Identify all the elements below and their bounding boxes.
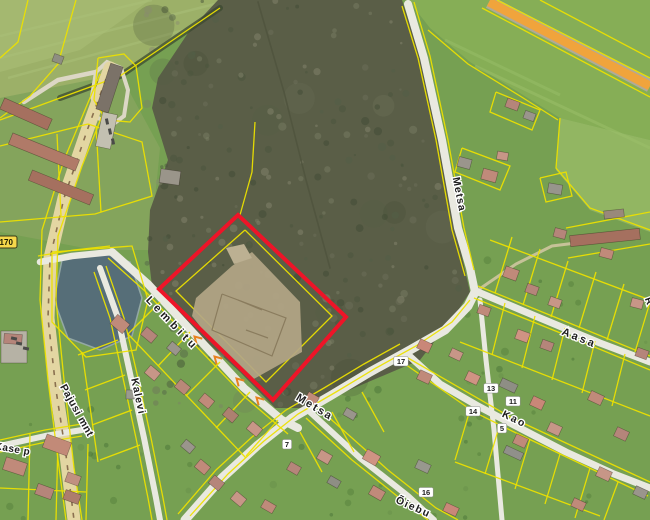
forest-speckle	[194, 187, 199, 192]
yard-tree	[347, 489, 354, 496]
forest-speckle	[424, 265, 428, 269]
forest-speckle	[235, 205, 238, 208]
forest-speckle	[160, 165, 163, 168]
forest-speckle	[288, 181, 292, 185]
house-number: 17	[397, 357, 405, 366]
forest-speckle	[177, 195, 184, 202]
yard-tree	[481, 371, 484, 374]
forest-speckle	[178, 262, 181, 265]
forest-speckle	[227, 147, 232, 152]
forest-speckle	[160, 270, 164, 274]
forest-speckle	[305, 71, 308, 74]
forest-speckle	[422, 199, 425, 202]
forest-speckle	[409, 126, 417, 134]
forest-speckle	[195, 115, 199, 119]
yard-tree	[531, 410, 535, 414]
yard-tree	[463, 486, 468, 491]
forest-speckle	[401, 316, 408, 323]
forest-speckle	[167, 244, 174, 251]
forest-speckle	[180, 350, 188, 358]
forest-speckle	[315, 133, 322, 140]
forest-speckle	[212, 16, 219, 23]
forest-speckle	[181, 217, 187, 223]
forest-speckle	[367, 172, 374, 179]
yard-tree	[88, 451, 93, 456]
forest-speckle	[230, 225, 238, 233]
forest-speckle	[386, 328, 394, 336]
yard-tree	[496, 366, 503, 373]
forest-speckle	[344, 131, 351, 138]
yard-tree	[498, 373, 503, 378]
forest-speckle	[335, 98, 342, 105]
forest-speckle	[261, 168, 269, 176]
forest-speckle	[169, 292, 172, 295]
yard-tree	[538, 279, 542, 283]
yard-tree	[29, 423, 32, 426]
forest-speckle	[362, 95, 368, 101]
yard-tree	[477, 452, 481, 456]
forest-speckle	[330, 253, 335, 258]
forest-speckle	[161, 6, 168, 13]
house-number: 5	[500, 424, 504, 433]
building-roof	[547, 183, 563, 195]
forest-speckle	[391, 265, 394, 268]
forest-speckle	[329, 366, 334, 371]
forest-speckle	[402, 90, 409, 97]
forest-speckle	[159, 97, 166, 104]
forest-speckle	[254, 33, 261, 40]
forest-speckle	[197, 56, 202, 61]
forest-speckle	[401, 164, 404, 167]
forest-speckle	[313, 68, 320, 75]
forest-speckle	[250, 106, 253, 109]
forest-speckle	[400, 42, 403, 45]
forest-speckle	[353, 3, 359, 9]
forest-speckle	[162, 390, 167, 395]
forest-speckle	[152, 386, 160, 394]
forest-speckle	[424, 203, 429, 208]
yard-tree	[644, 341, 647, 344]
forest-speckle	[276, 114, 281, 119]
forest-speckle	[216, 58, 221, 63]
forest-speckle	[375, 104, 381, 110]
yard-tree	[345, 396, 351, 402]
road-number: 4170	[0, 238, 13, 247]
yard-tree	[501, 348, 509, 356]
building-roof	[159, 169, 181, 186]
yard-tree	[463, 515, 467, 519]
yard-tree	[586, 493, 591, 498]
yard-tree	[116, 465, 121, 470]
yard-tree	[458, 415, 464, 421]
forest-speckle	[163, 236, 169, 242]
forest-speckle	[320, 110, 324, 114]
forest-speckle	[267, 108, 274, 115]
yard-tree	[186, 488, 192, 494]
forest-speckle	[310, 382, 318, 390]
forest-speckle	[435, 183, 442, 190]
forest-speckle	[278, 122, 286, 130]
yard-tree	[165, 445, 170, 450]
forest-speckle	[455, 285, 462, 292]
yard-tree	[337, 412, 342, 417]
forest-speckle	[356, 224, 364, 232]
yard-tree	[110, 497, 117, 504]
yard-tree	[388, 510, 392, 514]
forest-speckle	[321, 375, 325, 379]
yard-tree	[299, 444, 305, 450]
forest-speckle	[298, 176, 303, 181]
forest-speckle	[391, 69, 395, 73]
forest-speckle	[198, 133, 201, 136]
forest-speckle	[266, 202, 272, 208]
forest-speckle	[212, 262, 217, 267]
forest-speckle	[145, 261, 150, 266]
forest-speckle	[345, 302, 353, 310]
forest-speckle	[389, 20, 392, 23]
forest-speckle	[374, 127, 382, 135]
forest-speckle	[345, 157, 352, 164]
forest-speckle	[268, 30, 273, 35]
forest-speckle	[265, 146, 272, 153]
forest-speckle	[206, 228, 211, 233]
forest-speckle	[329, 339, 334, 344]
yard-tree	[571, 358, 574, 361]
forest-speckle	[432, 195, 437, 200]
forest-speckle	[385, 255, 391, 261]
forest-speckle	[396, 298, 403, 305]
forest-speckle	[238, 72, 243, 77]
forest-speckle	[259, 210, 267, 218]
forest-speckle	[187, 146, 190, 149]
map-canvas[interactable]: LembituKaleviMetsaMetsaAasaKaoPajusi mnt…	[0, 0, 650, 520]
forest-speckle	[399, 183, 403, 187]
forest-speckle	[389, 155, 395, 161]
forest-blob	[252, 105, 283, 136]
forest-speckle	[382, 214, 388, 220]
forest-speckle	[153, 400, 159, 406]
forest-speckle	[205, 137, 209, 141]
forest-speckle	[175, 61, 179, 65]
forest-speckle	[174, 195, 178, 199]
forest-speckle	[293, 80, 298, 85]
forest-speckle	[218, 124, 223, 129]
forest-speckle	[390, 227, 394, 231]
forest-speckle	[332, 28, 337, 33]
forest-speckle	[203, 101, 208, 106]
yard-tree	[464, 440, 468, 444]
yard-tree	[104, 443, 109, 448]
forest-speckle	[192, 51, 196, 55]
forest-speckle	[169, 14, 176, 21]
forest-speckle	[277, 402, 283, 408]
forest-speckle	[314, 173, 321, 180]
yard-tree	[330, 513, 334, 517]
forest-speckle	[365, 127, 371, 133]
forest-speckle	[228, 27, 233, 32]
forest-speckle	[343, 278, 348, 283]
forest-speckle	[388, 92, 393, 97]
forest-speckle	[253, 43, 257, 47]
house-number: 16	[422, 488, 430, 497]
forest-speckle	[172, 280, 179, 287]
forest-speckle	[290, 224, 293, 227]
forest-speckle	[452, 270, 457, 275]
forest-speckle	[407, 187, 411, 191]
forest-speckle	[409, 216, 416, 223]
forest-speckle	[297, 89, 302, 94]
forest-speckle	[187, 70, 193, 76]
forest-speckle	[164, 164, 168, 168]
yard-tree	[345, 500, 352, 507]
forest-speckle	[328, 198, 334, 204]
forest-speckle	[362, 64, 369, 71]
forest-speckle	[392, 212, 399, 219]
forest-speckle	[324, 166, 330, 172]
forest-speckle	[247, 242, 251, 246]
yard-tree	[187, 462, 192, 467]
forest-speckle	[331, 119, 337, 125]
forest-speckle	[168, 101, 175, 108]
yard-tree	[270, 481, 277, 488]
forest-speckle	[286, 7, 289, 10]
house-number: 14	[469, 407, 478, 416]
forest-speckle	[229, 171, 236, 178]
forest-speckle	[147, 236, 152, 241]
forest-speckle	[389, 305, 396, 312]
yard-tree	[467, 421, 472, 426]
forest-speckle	[394, 242, 397, 245]
forest-speckle	[337, 299, 345, 307]
forest-speckle	[250, 180, 256, 186]
forest-speckle	[312, 320, 319, 327]
forest-speckle	[364, 134, 368, 138]
forest-speckle	[172, 70, 178, 76]
forest-speckle	[298, 229, 304, 235]
forest-speckle	[414, 183, 418, 187]
forest-speckle	[348, 252, 354, 258]
forest-speckle	[208, 84, 213, 89]
forest-speckle	[350, 199, 357, 206]
forest-speckle	[319, 215, 323, 219]
forest-speckle	[322, 211, 325, 214]
forest-speckle	[315, 124, 318, 127]
forest-speckle	[192, 234, 195, 237]
house-number: 11	[509, 397, 517, 406]
forest-blob	[183, 51, 208, 76]
forest-speckle	[421, 139, 424, 142]
forest-speckle	[354, 154, 356, 156]
forest-speckle	[255, 219, 259, 223]
yard-tree	[575, 300, 581, 306]
forest-speckle	[387, 140, 394, 147]
yard-tree	[484, 256, 492, 264]
forest-speckle	[215, 177, 219, 181]
forest-speckle	[205, 64, 209, 68]
house-number: 7	[285, 440, 289, 449]
yard-tree	[374, 386, 382, 394]
forest-speckle	[336, 291, 339, 294]
building-roof	[496, 151, 508, 161]
forest-speckle	[219, 404, 223, 408]
forest-speckle	[399, 88, 401, 90]
house-number: 13	[487, 384, 495, 393]
forest-speckle	[295, 5, 299, 9]
forest-speckle	[176, 21, 180, 25]
forest-speckle	[369, 12, 373, 16]
forest-speckle	[303, 64, 307, 68]
forest-speckle	[181, 79, 187, 85]
forest-speckle	[452, 277, 459, 284]
forest-speckle	[313, 234, 316, 237]
forest-speckle	[361, 271, 366, 276]
forest-speckle	[339, 105, 346, 112]
forest-speckle	[218, 239, 225, 246]
forest-speckle	[176, 157, 183, 164]
forest-speckle	[378, 143, 386, 151]
yard-tree	[78, 444, 85, 451]
forest-speckle	[378, 283, 382, 287]
forest-speckle	[331, 33, 337, 39]
forest-speckle	[369, 258, 372, 261]
forest-speckle	[354, 296, 360, 302]
forest-speckle	[171, 131, 177, 137]
forest-speckle	[201, 165, 206, 170]
forest-speckle	[177, 360, 185, 368]
building-roof	[604, 209, 625, 219]
yard-tree	[568, 281, 574, 287]
forest-speckle	[222, 264, 224, 266]
forest-speckle	[200, 216, 203, 219]
forest-speckle	[304, 257, 307, 260]
forest-speckle	[360, 331, 366, 337]
forest-speckle	[347, 353, 352, 358]
forest-speckle	[176, 116, 182, 122]
forest-speckle	[323, 271, 329, 277]
forest-speckle	[178, 402, 181, 405]
forest-speckle	[323, 140, 329, 146]
forest-speckle	[144, 12, 149, 17]
forest-speckle	[382, 274, 388, 280]
forest-speckle	[402, 176, 407, 181]
forest-speckle	[299, 242, 303, 246]
forest-speckle	[361, 117, 369, 125]
satellite-map[interactable]: LembituKaleviMetsaMetsaAasaKaoPajusi mnt…	[0, 0, 650, 520]
yard-tree	[6, 503, 13, 510]
forest-speckle	[358, 307, 364, 313]
forest-speckle	[143, 100, 151, 108]
